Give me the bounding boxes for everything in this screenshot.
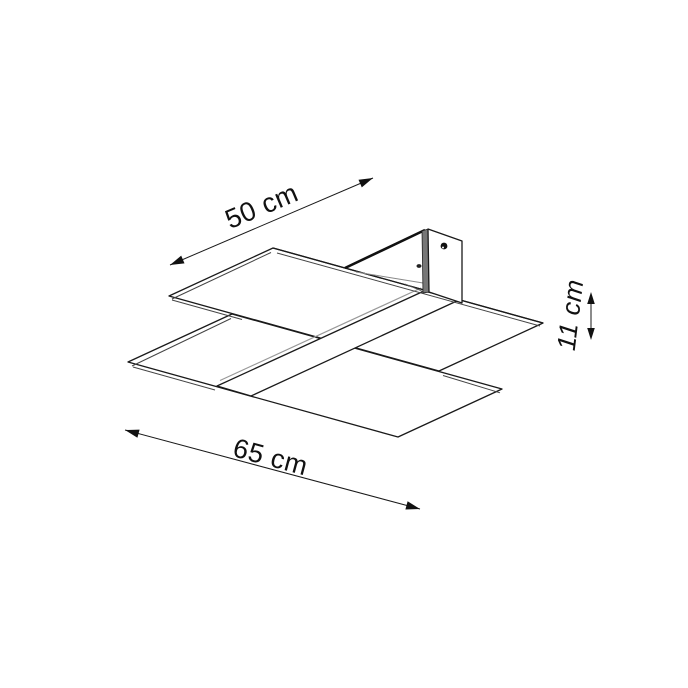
dimension-diagram-page: 50 cm 65 cm 11 cm: [0, 0, 688, 688]
dim-width: 65 cm: [125, 430, 420, 510]
mount-arm-edge: [345, 230, 425, 268]
ceiling-lamp-dimension-drawing: 50 cm 65 cm 11 cm: [0, 0, 688, 688]
dim-depth-arrowhead: [170, 256, 185, 265]
dim-width-arrowhead: [405, 501, 420, 509]
dim-height-arrowhead: [587, 328, 595, 340]
mount-front-face: [428, 229, 462, 303]
dim-width-arrowhead: [125, 430, 140, 438]
dim-height: 11 cm: [551, 278, 595, 352]
dim-depth-arrowhead: [359, 178, 374, 187]
dim-height-arrowhead: [587, 292, 595, 304]
mount-screw-highlight: [442, 247, 444, 249]
arm-screw: [417, 264, 422, 268]
ceiling-mount: [422, 229, 462, 303]
dim-width-label: 65 cm: [230, 433, 311, 482]
mount-screw: [441, 243, 448, 250]
dim-height-label: 11 cm: [551, 278, 589, 352]
